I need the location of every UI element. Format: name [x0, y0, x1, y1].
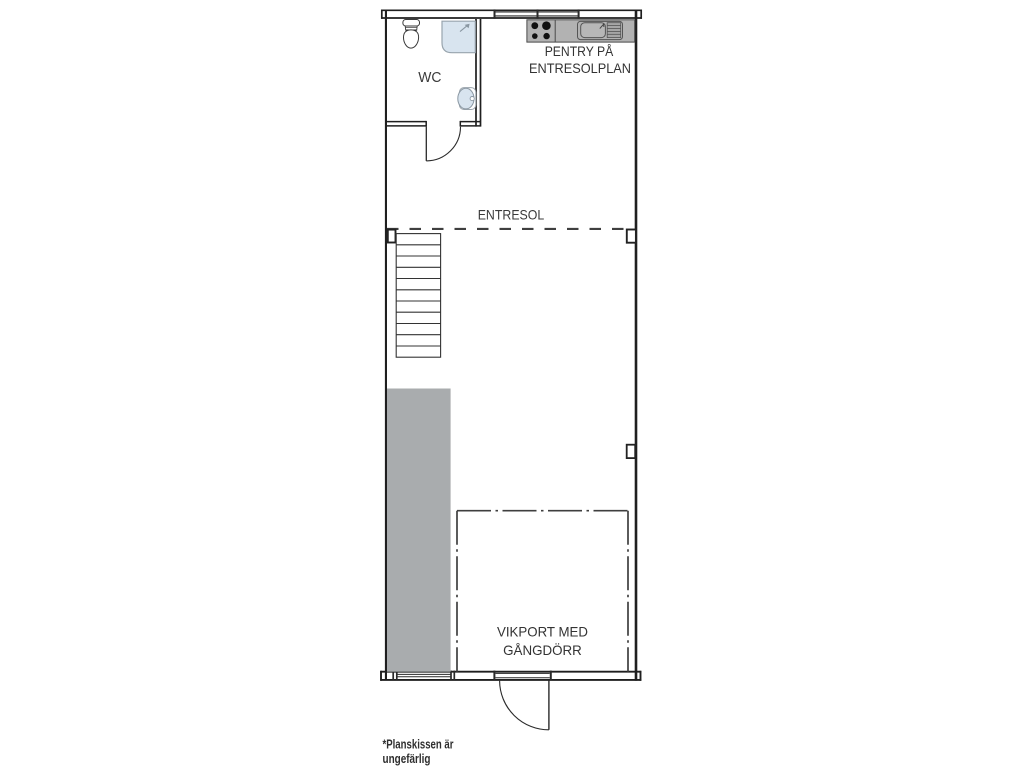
svg-text:PENTRY PÅ: PENTRY PÅ	[545, 43, 614, 59]
svg-text:GÅNGDÖRR: GÅNGDÖRR	[503, 641, 582, 658]
svg-text:*Planskissen är: *Planskissen är	[383, 737, 454, 752]
svg-text:ENTRESOL: ENTRESOL	[478, 207, 545, 223]
svg-text:VIKPORT MED: VIKPORT MED	[497, 624, 588, 640]
svg-text:ENTRESOLPLAN: ENTRESOLPLAN	[529, 60, 631, 76]
svg-text:WC: WC	[418, 70, 441, 86]
svg-text:ungefärlig: ungefärlig	[383, 751, 431, 766]
